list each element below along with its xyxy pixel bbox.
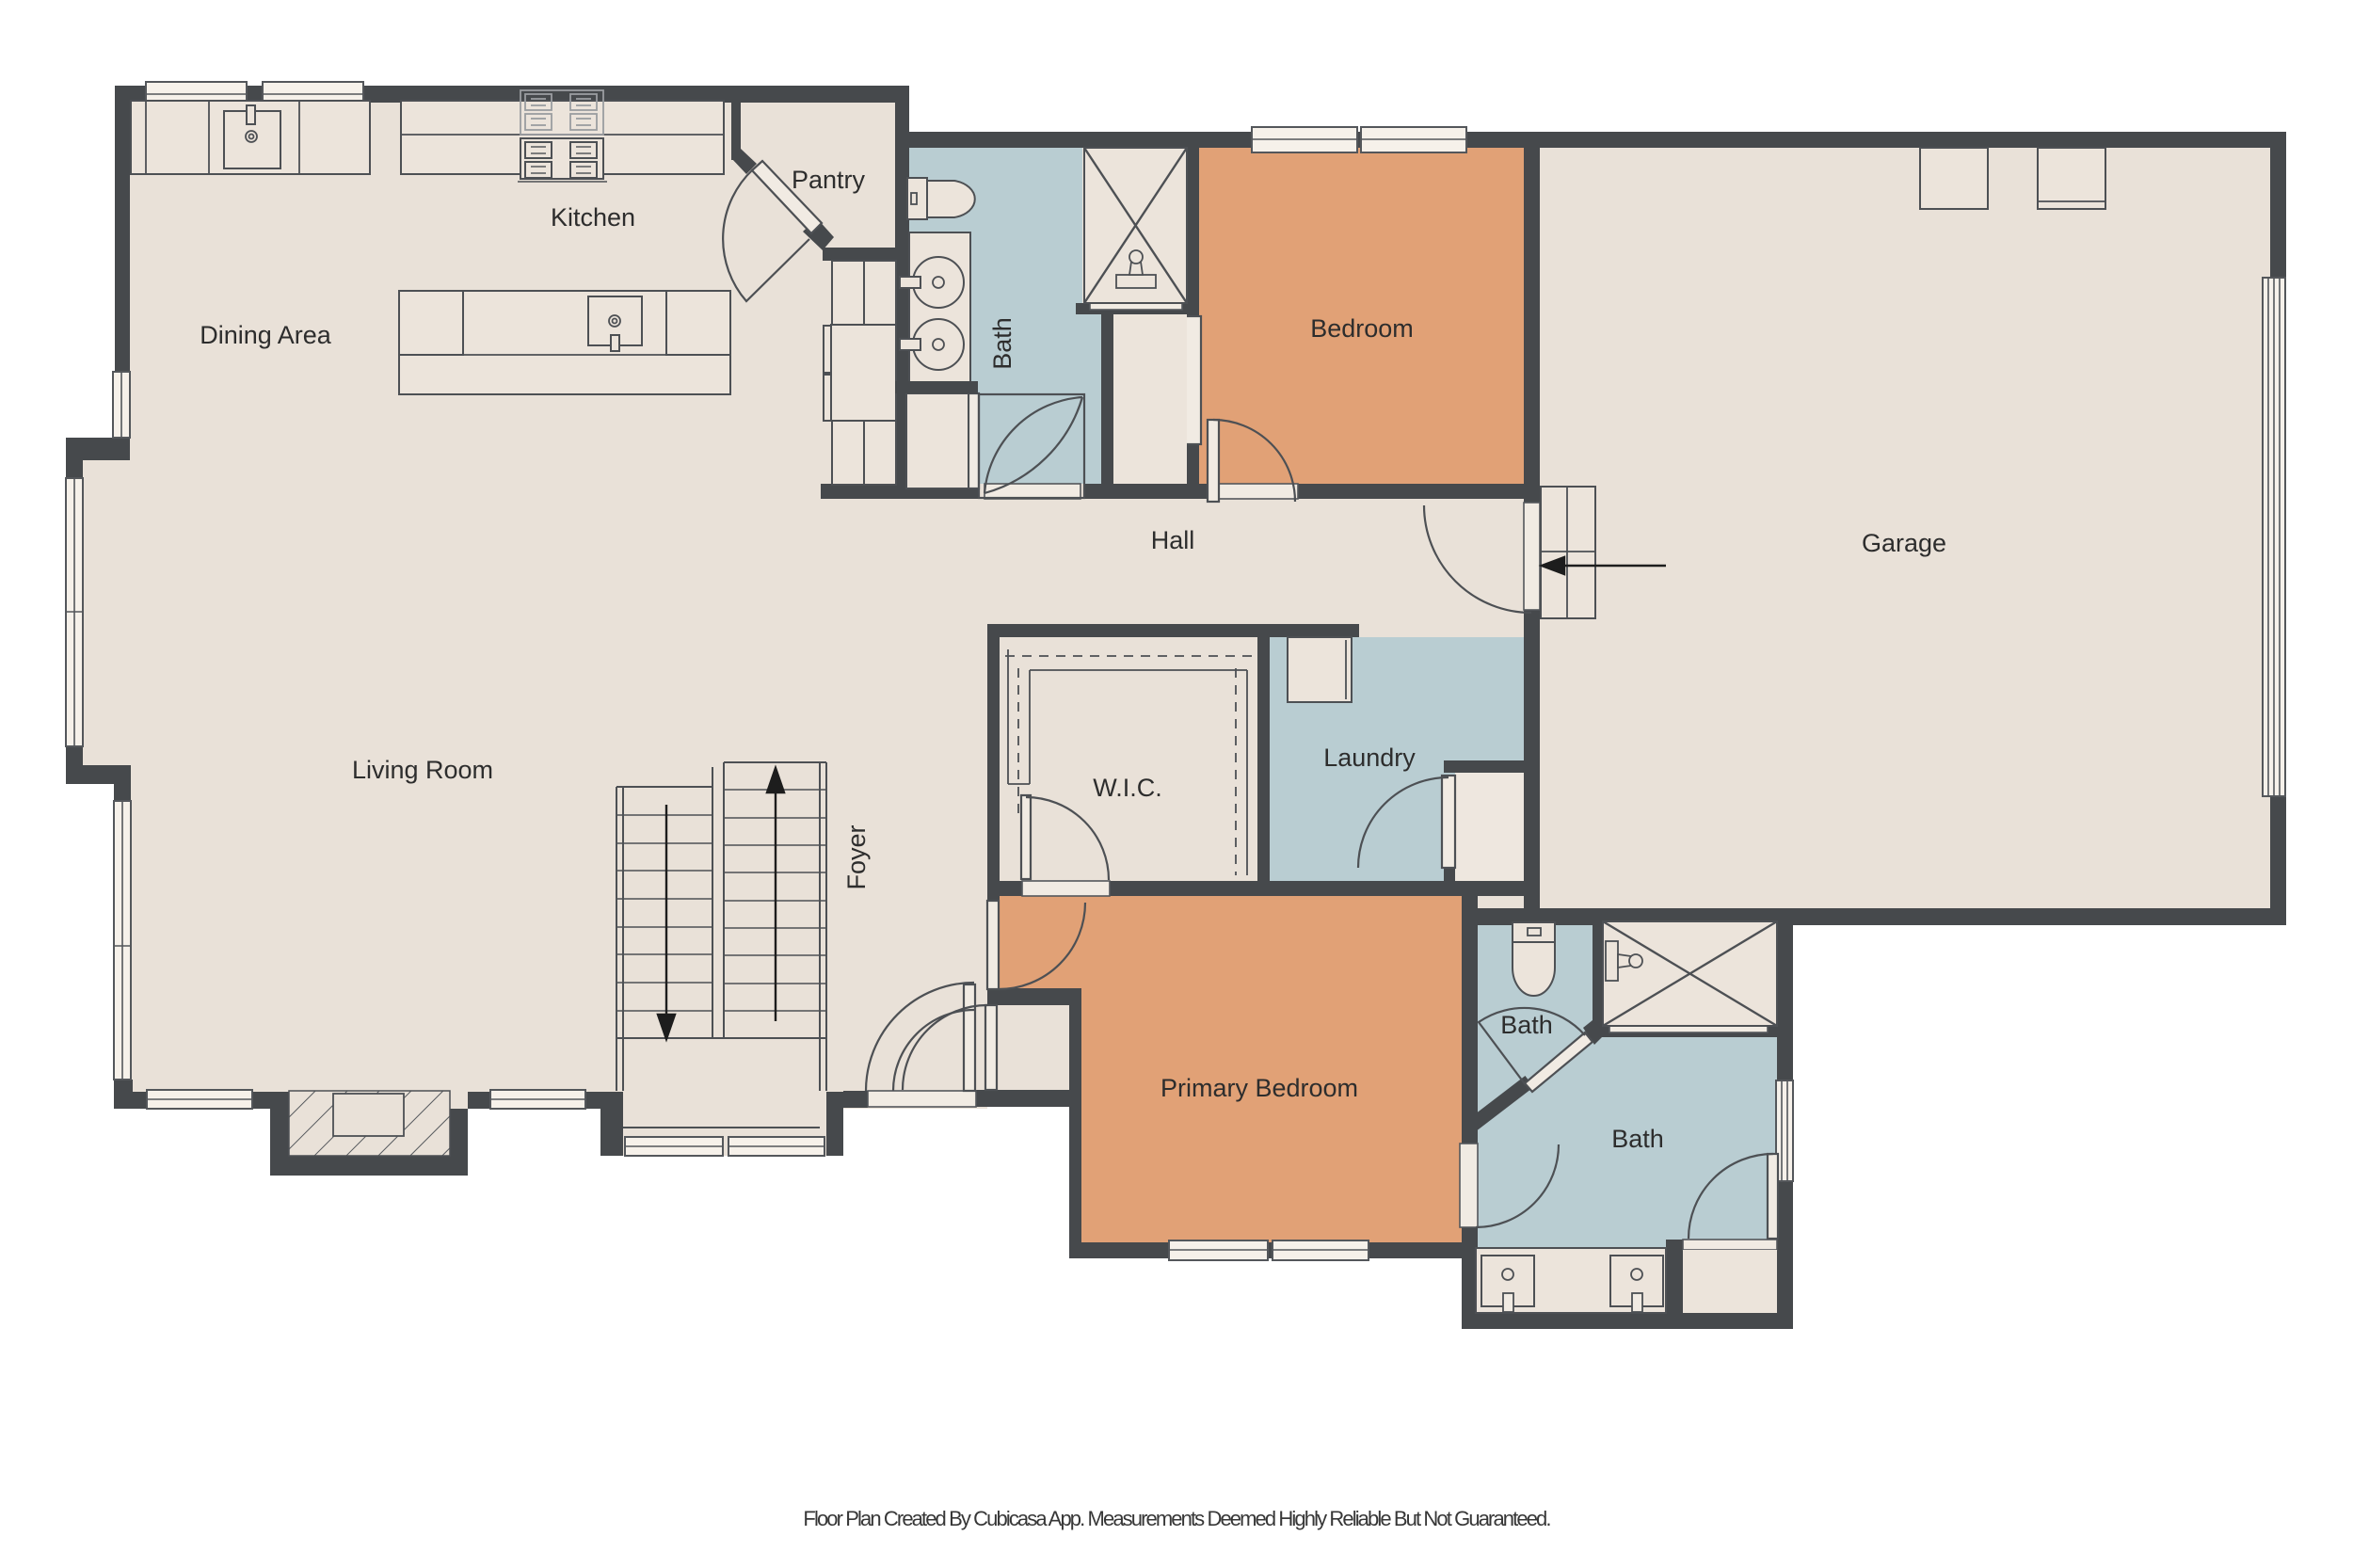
svg-text:Kitchen: Kitchen <box>551 203 635 232</box>
svg-text:Foyer: Foyer <box>842 824 871 889</box>
svg-text:Hall: Hall <box>1151 526 1195 554</box>
svg-text:Bath: Bath <box>1500 1011 1553 1039</box>
svg-text:Bath: Bath <box>988 317 1016 370</box>
svg-text:W.I.C.: W.I.C. <box>1093 774 1162 802</box>
svg-text:Pantry: Pantry <box>792 166 866 194</box>
svg-text:Laundry: Laundry <box>1323 744 1416 772</box>
svg-text:Garage: Garage <box>1862 529 1946 557</box>
svg-text:Living Room: Living Room <box>352 756 493 784</box>
svg-text:Bath: Bath <box>1611 1125 1664 1153</box>
svg-text:Dining Area: Dining Area <box>200 321 332 349</box>
svg-text:Floor Plan Created By Cubicasa: Floor Plan Created By Cubicasa App. Meas… <box>803 1507 1550 1530</box>
svg-text:Primary Bedroom: Primary Bedroom <box>1160 1074 1358 1102</box>
svg-text:Bedroom: Bedroom <box>1310 314 1414 343</box>
